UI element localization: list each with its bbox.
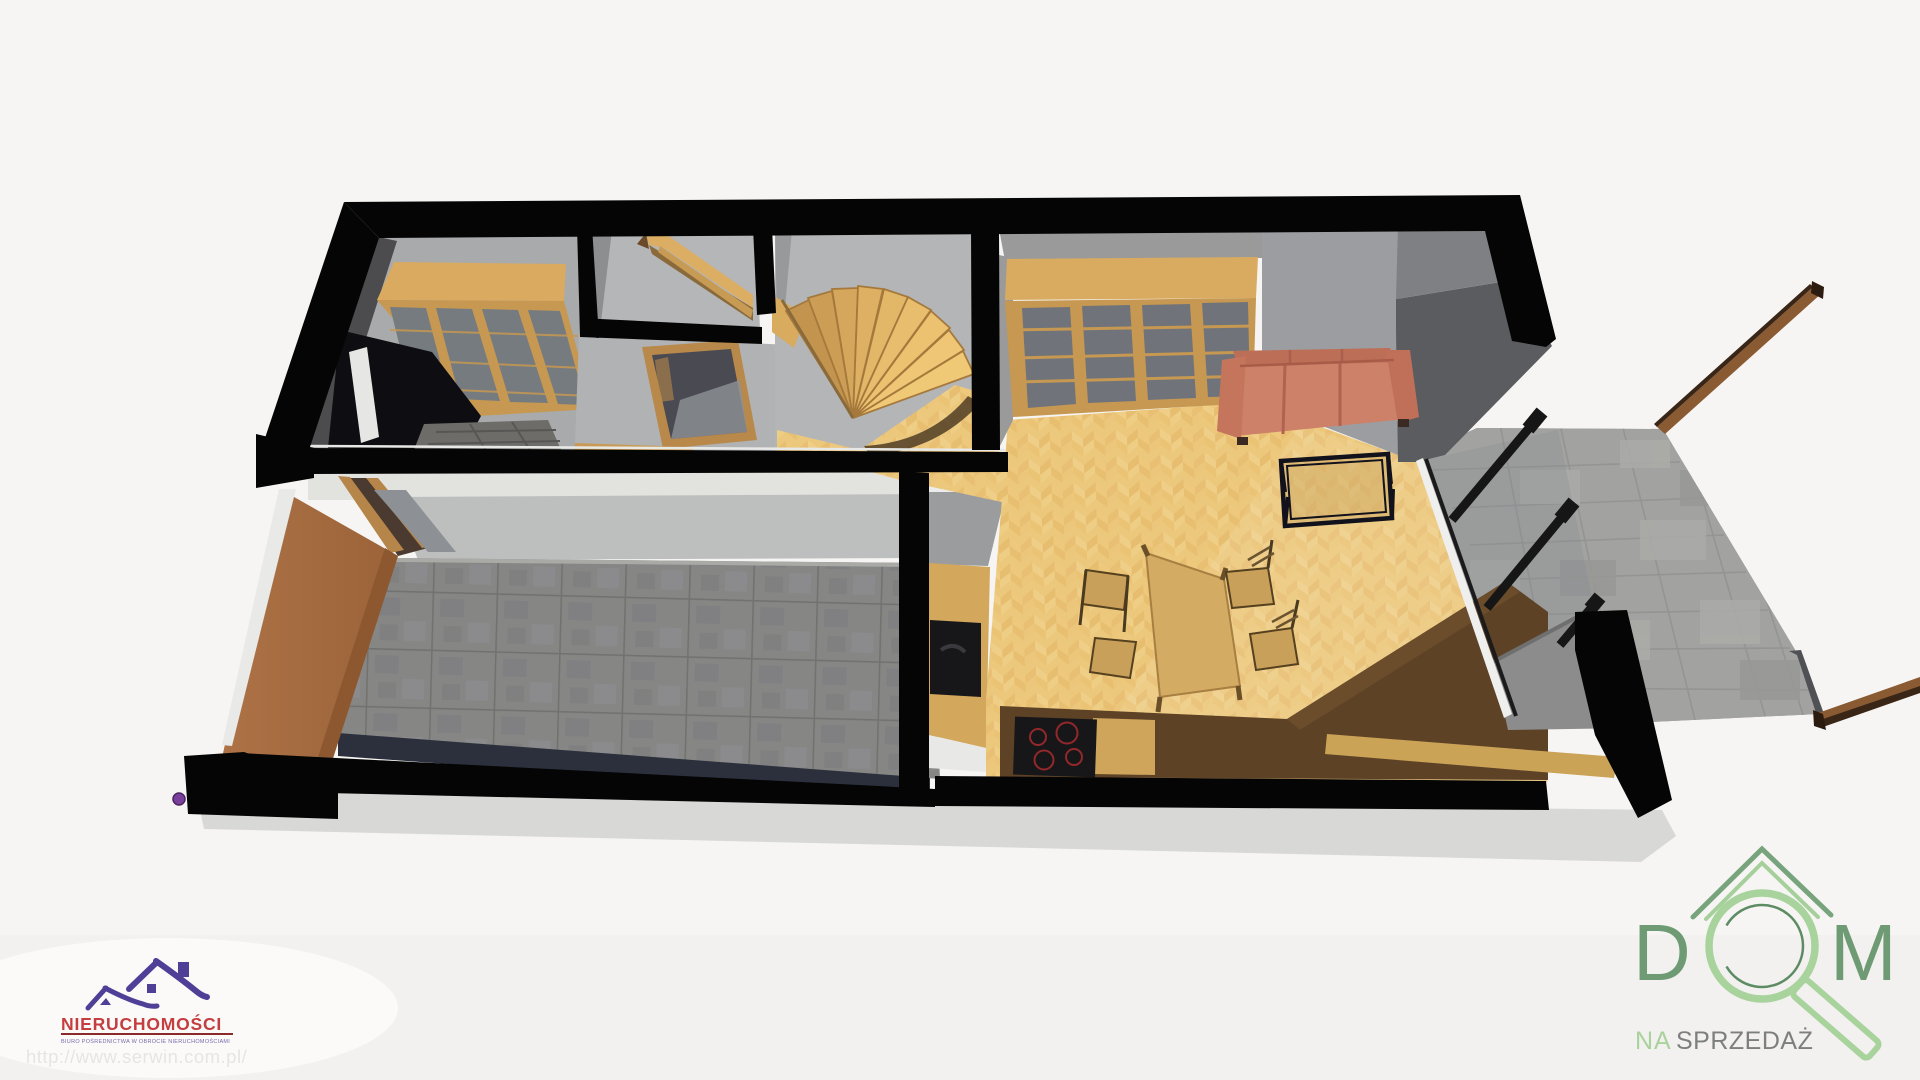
svg-text:BIURO POŚREDNICTWA W OBROCIE N: BIURO POŚREDNICTWA W OBROCIE NIERUCHOMOŚ… [61, 1037, 230, 1045]
svg-text:SPRZEDAŻ: SPRZEDAŻ [1676, 1026, 1813, 1055]
svg-text:http://www.serwin.com.pl/: http://www.serwin.com.pl/ [26, 1046, 248, 1067]
svg-text:NA: NA [1635, 1027, 1672, 1055]
svg-text:D: D [1633, 908, 1691, 997]
svg-text:M: M [1830, 908, 1897, 997]
svg-text:NIERUCHOMOŚCI: NIERUCHOMOŚCI [61, 1013, 222, 1034]
